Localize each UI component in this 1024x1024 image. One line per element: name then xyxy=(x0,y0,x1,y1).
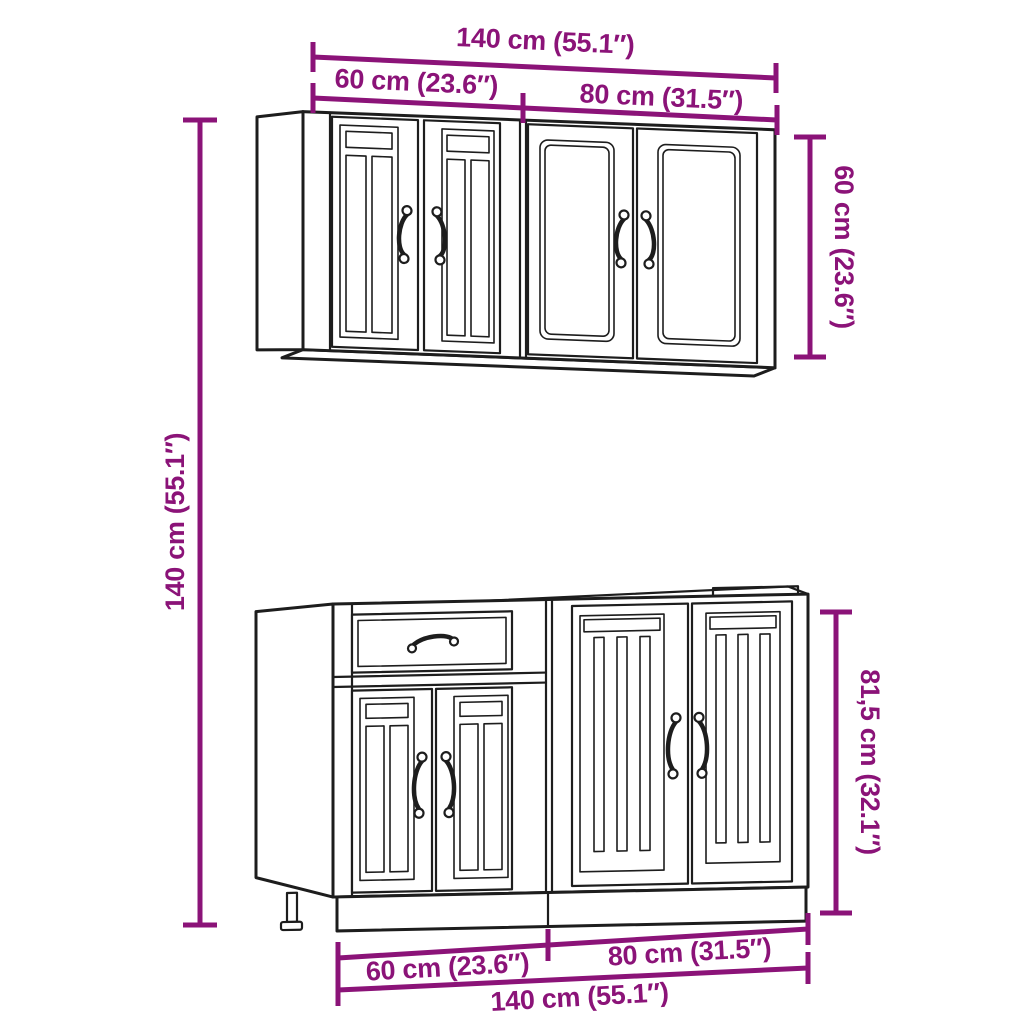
wall-cabinet-side-panel xyxy=(257,110,303,352)
base-cabinet xyxy=(256,586,808,933)
dim-overall-height: 140 cm (55.1″) xyxy=(160,120,217,925)
dim-label-top-total: 140 cm (55.1″) xyxy=(456,22,636,60)
base-left-door-2 xyxy=(436,687,512,891)
dim-wall-height: 60 cm (23.6″) xyxy=(794,137,859,357)
dim-label-wall-height: 60 cm (23.6″) xyxy=(829,165,859,329)
wall-left-door-1 xyxy=(332,117,418,350)
base-drawer xyxy=(352,611,512,672)
wall-cabinet xyxy=(257,110,775,377)
wall-left-door-2 xyxy=(424,120,500,353)
base-cabinet-leg xyxy=(281,893,302,930)
dim-label-top-left: 60 cm (23.6″) xyxy=(334,63,499,100)
dim-label-base-height: 81,5 cm (32.1″) xyxy=(855,669,885,855)
dim-label-overall-height: 140 cm (55.1″) xyxy=(160,433,190,611)
base-left-door-1 xyxy=(352,689,432,893)
base-right-door-1 xyxy=(572,604,688,886)
dim-base-height: 81,5 cm (32.1″) xyxy=(820,612,885,913)
base-cabinet-side-panel xyxy=(256,604,333,899)
diagram-canvas: 140 cm (55.1″) 60 cm (23.6″) 80 cm (31.5… xyxy=(0,0,1024,1024)
cabinet-dimension-diagram: 140 cm (55.1″) 60 cm (23.6″) 80 cm (31.5… xyxy=(0,0,1024,1024)
